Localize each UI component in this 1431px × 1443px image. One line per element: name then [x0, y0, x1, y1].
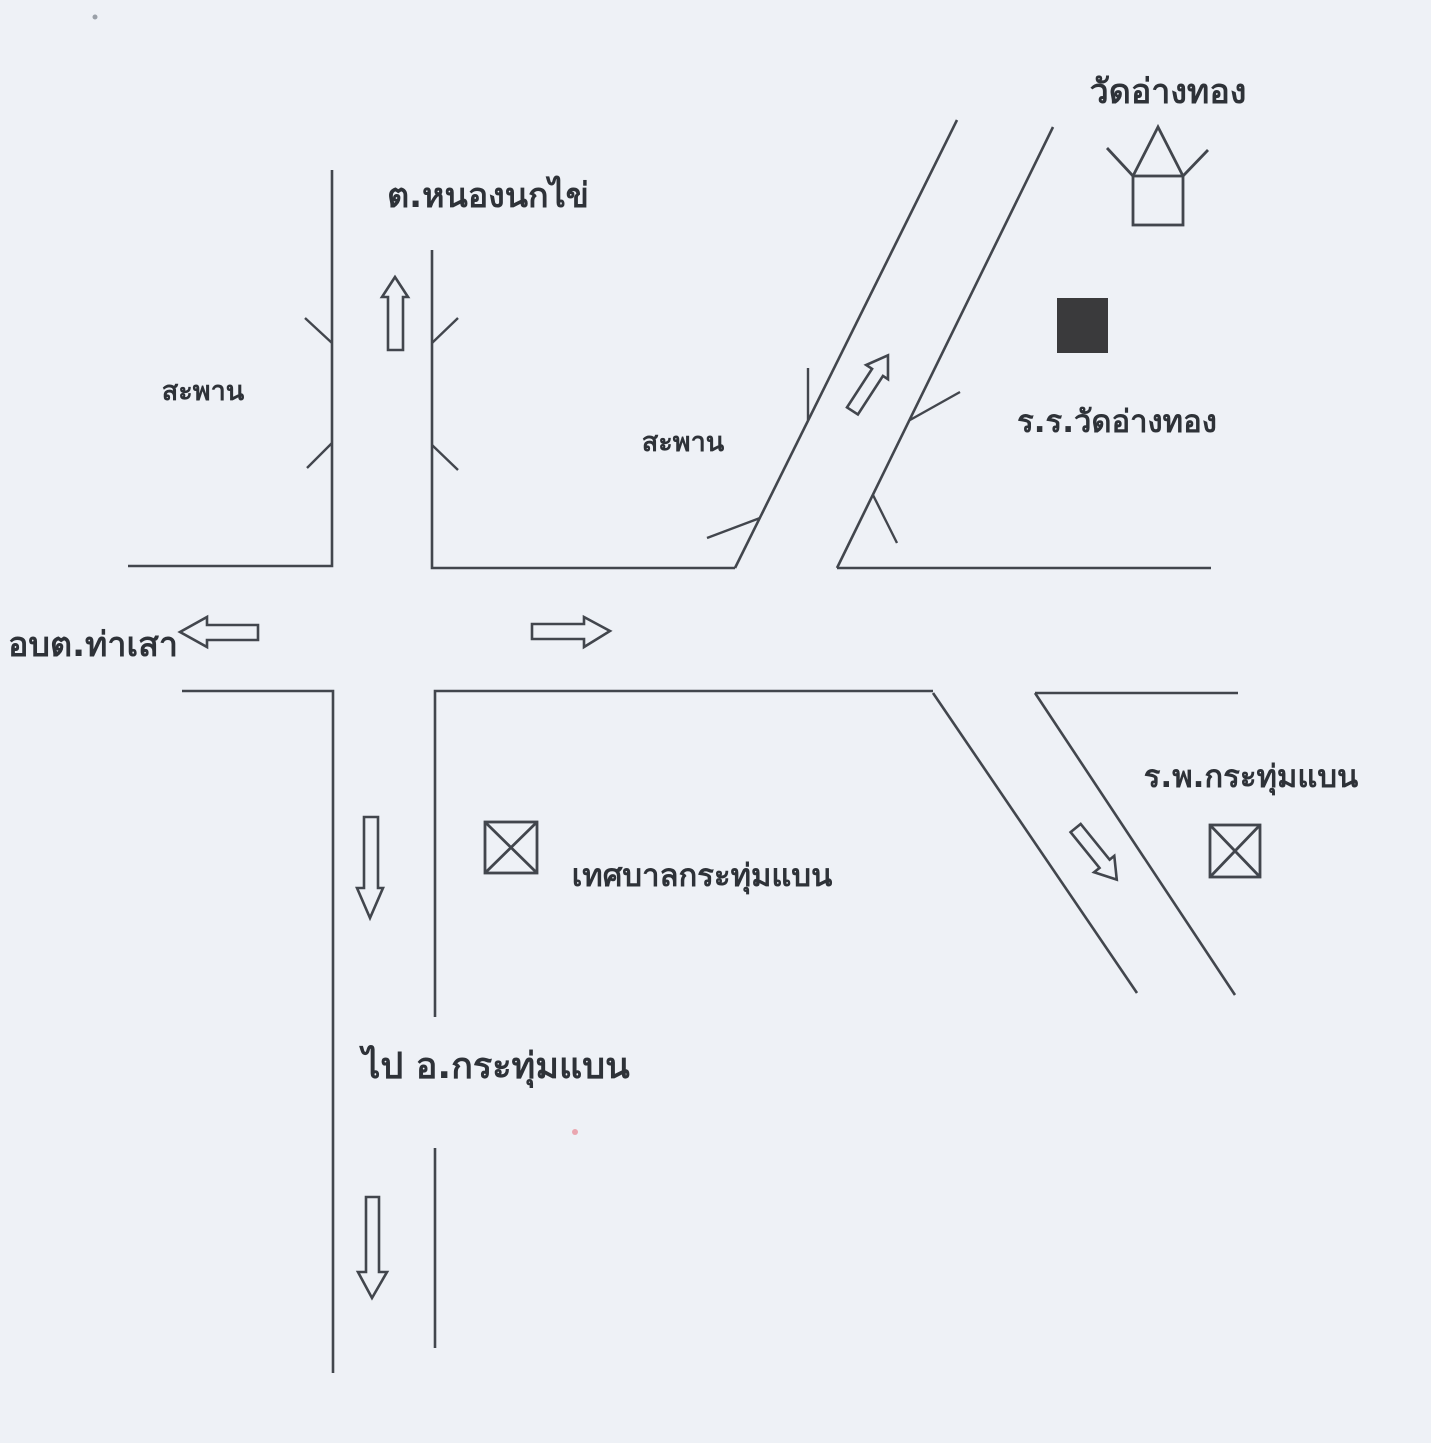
arrow-left-icon — [180, 617, 258, 647]
arrow-right-icon — [532, 617, 610, 647]
bridge-tick — [432, 445, 458, 470]
bridge-west-label: สะพาน — [162, 376, 245, 407]
road-north-left-line — [128, 170, 332, 566]
road-south-right-line-upper — [435, 691, 933, 1017]
temple-wing-left — [1107, 148, 1133, 176]
subdistrict-north-label: ต.หนองนกไข่ — [387, 175, 589, 216]
arrow-down-right-icon — [1065, 820, 1127, 888]
bridge-tick — [873, 495, 897, 543]
temple-body — [1133, 176, 1183, 225]
bridge-middle-label: สะพาน — [642, 427, 725, 458]
arrow-up-right-group — [841, 348, 899, 418]
school-label: ร.ร.วัดอ่างทอง — [1017, 404, 1217, 440]
bridge-tick — [305, 318, 332, 343]
hospital-label: ร.พ.กระทุ่มแบน — [1144, 759, 1358, 796]
arrow-down-icon — [357, 817, 383, 918]
scan-speck-red — [572, 1129, 578, 1135]
map-canvas: วัดอ่างทอง ต.หนองนกไข่ สะพาน สะพาน ร.ร.ว… — [0, 0, 1431, 1443]
temple-wing-right — [1183, 150, 1208, 176]
road-northeast-right-line — [837, 127, 1053, 568]
temple-roof — [1133, 127, 1183, 176]
school-filled-square-marker — [1057, 298, 1108, 353]
hospital-crossed-box-marker — [1210, 825, 1260, 877]
road-south-left-line — [182, 691, 333, 1373]
road-north-right-line — [432, 250, 735, 568]
municipality-crossed-box-marker — [485, 822, 537, 873]
crossed-box-x — [1210, 825, 1260, 877]
road-northeast-left-line — [735, 120, 957, 568]
arrow-down-right-group — [1065, 820, 1127, 888]
bridge-tick — [432, 318, 458, 343]
road-southeast-left-line — [933, 693, 1137, 993]
route-south-label: ไป อ.กระทุ่มแบน — [358, 1044, 630, 1089]
temple-house-icon — [1107, 127, 1208, 225]
municipality-label: เทศบาลกระทุ่มแบน — [572, 858, 833, 895]
bridge-tick — [307, 443, 332, 468]
arrow-down-icon — [358, 1197, 387, 1298]
temple-label: วัดอ่างทอง — [1090, 72, 1247, 112]
road-southeast-right-line — [1035, 693, 1235, 995]
scan-speck — [93, 15, 98, 20]
arrow-up-right-icon — [841, 348, 899, 418]
sketch-route-map: วัดอ่างทอง ต.หนองนกไข่ สะพาน สะพาน ร.ร.ว… — [0, 0, 1431, 1443]
crossed-box-x — [485, 822, 537, 873]
sao-west-label: อบต.ท่าเสา — [8, 625, 178, 665]
bridge-marks-west — [305, 318, 458, 470]
arrow-up-icon — [382, 277, 408, 350]
